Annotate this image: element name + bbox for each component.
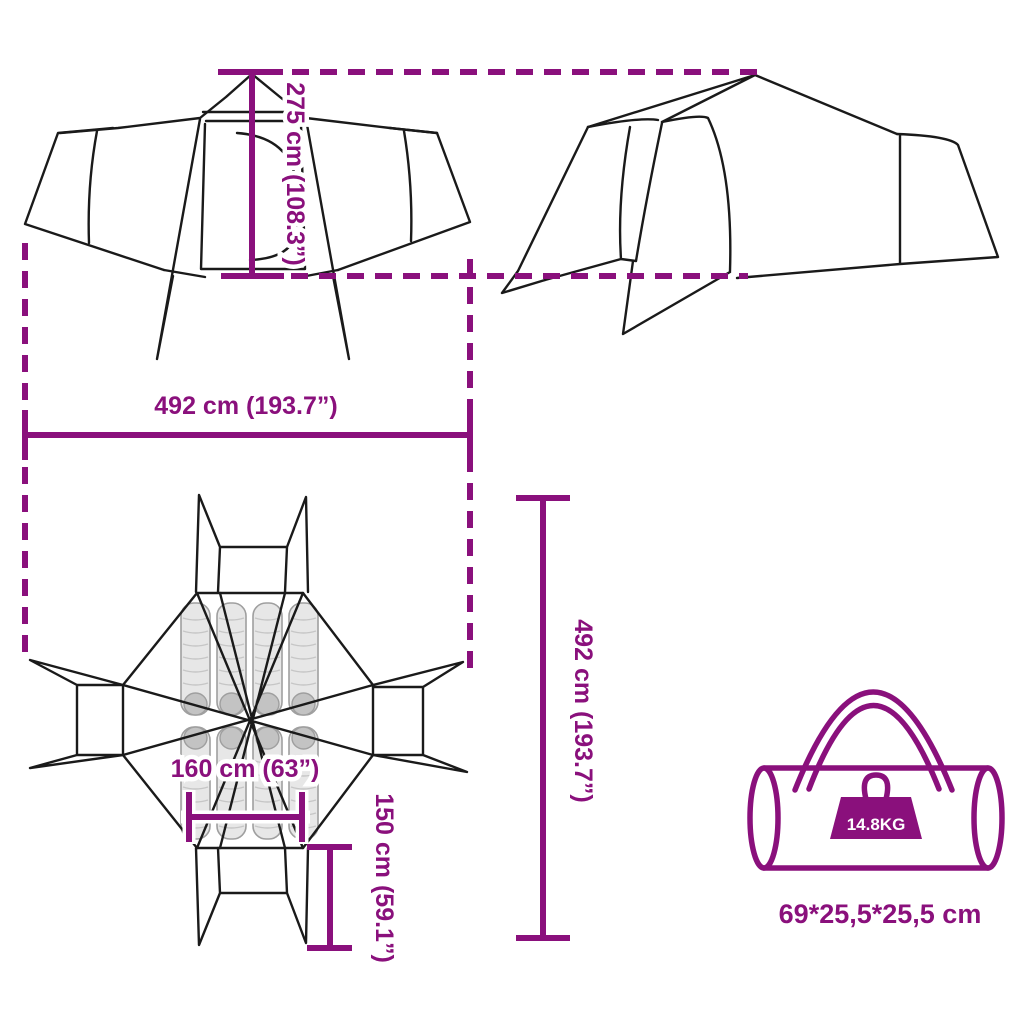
sleeping-pad [181,603,210,715]
inner-width-dimension-label: 160 cm (63”) [171,755,320,783]
side-ridge [588,75,897,134]
front-right-wing [338,128,470,270]
sleeping-pad [289,603,318,715]
floor-vestibule-left [30,660,123,768]
bag-right-end [974,768,1002,868]
diagram-svg: 275 cm (108.3”) 492 cm (193.7”) 492 cm (… [0,0,1024,1024]
side-guy-lines [623,261,730,334]
side-door [545,123,662,280]
front-right-guy-lines [306,119,349,359]
tent-side-view [502,75,998,334]
floor-vestibule-right [373,662,467,772]
tent-floor-plan [30,495,467,945]
length-dimension-label: 492 cm (193.7”) [569,619,597,802]
front-left-wing [25,128,164,270]
height-dimension-line [218,72,284,276]
front-roofline [60,74,437,133]
height-dimension-label: 275 cm (108.3”) [281,82,309,265]
vestibule-depth-dimension-line [307,847,352,948]
side-body [737,134,998,278]
floor-ridge-lines [123,593,373,848]
side-porch-front [662,117,730,271]
tent-front-view [25,74,470,359]
side-porch-left-edge [502,127,588,293]
tent-dimensions-diagram: 275 cm (108.3”) 492 cm (193.7”) 492 cm (… [0,0,1024,1024]
front-left-guy-lines [157,119,200,359]
floor-vestibule-bottom [196,848,308,945]
package-size-label: 69*25,5*25,5 cm [779,899,982,929]
width-dimension-label: 492 cm (193.7”) [154,392,337,420]
bag-left-end [750,768,778,868]
vestibule-depth-dimension-label: 150 cm (59.1”) [370,793,398,963]
length-dimension-line [516,498,570,938]
floor-vestibule-top [196,495,308,592]
weight-label: 14.8KG [847,815,906,834]
carry-bag-icon: 14.8KG 69*25,5*25,5 cm [750,692,1002,929]
